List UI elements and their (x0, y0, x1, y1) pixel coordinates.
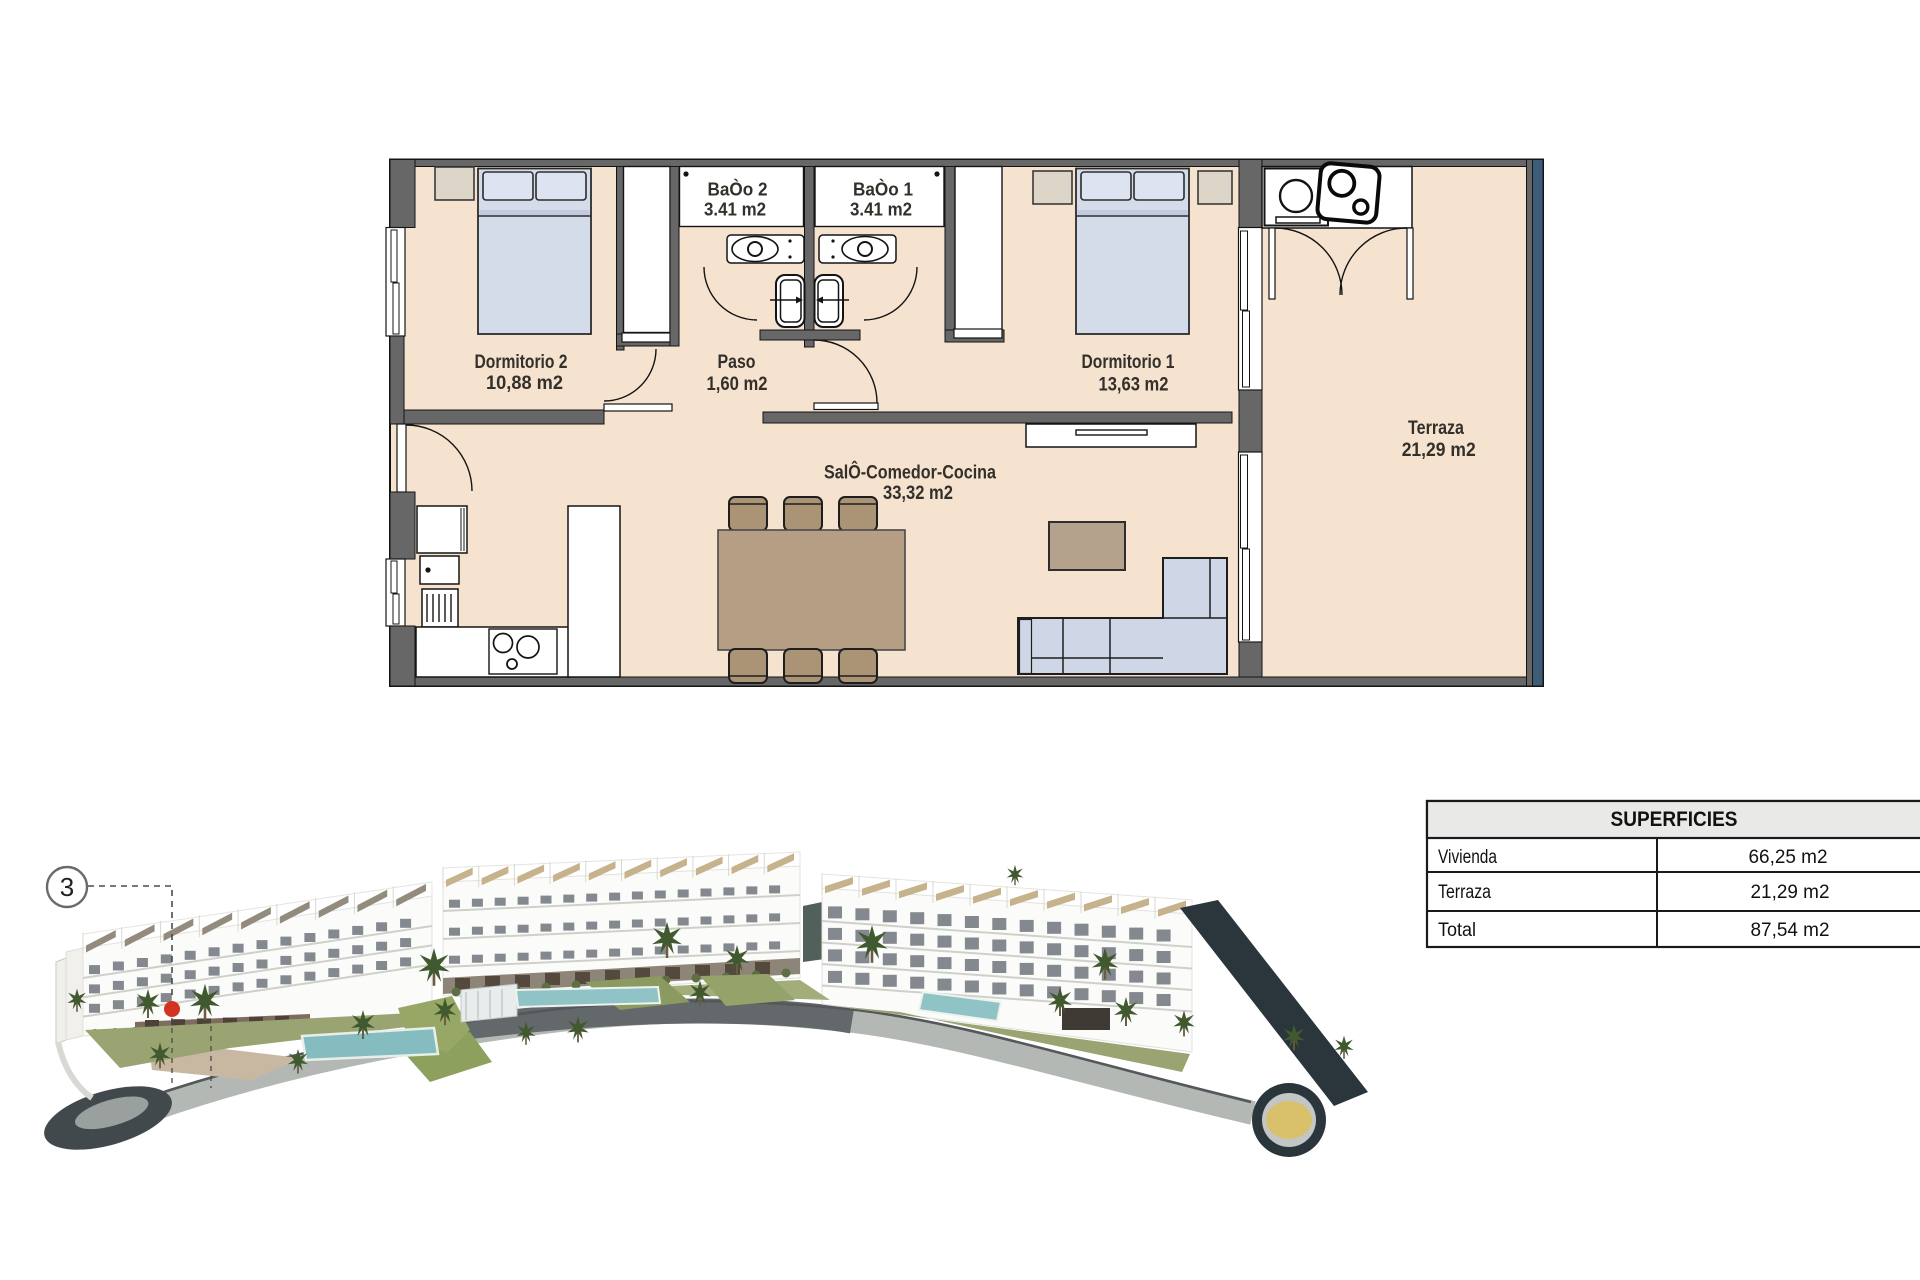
svg-text:13,63 m2: 13,63 m2 (1099, 375, 1169, 396)
svg-text:Terraza: Terraza (1408, 418, 1464, 439)
svg-text:Dormitorio 1: Dormitorio 1 (1082, 352, 1175, 373)
svg-text:66,25 m2: 66,25 m2 (1749, 847, 1828, 868)
svg-text:1,60 m2: 1,60 m2 (707, 374, 768, 395)
svg-text:Vivienda: Vivienda (1438, 847, 1497, 868)
svg-text:Dormitorio 2: Dormitorio 2 (475, 352, 568, 373)
svg-text:BaÒo 1: BaÒo 1 (853, 179, 913, 200)
svg-text:Paso: Paso (718, 352, 756, 373)
svg-text:Terraza: Terraza (1438, 882, 1491, 903)
svg-text:SUPERFICIES: SUPERFICIES (1611, 807, 1738, 831)
svg-text:33,32 m2: 33,32 m2 (883, 483, 953, 504)
svg-text:3.41 m2: 3.41 m2 (704, 200, 766, 220)
svg-text:21,29 m2: 21,29 m2 (1751, 882, 1830, 903)
svg-text:21,29 m2: 21,29 m2 (1402, 440, 1476, 461)
svg-text:SalÔ-Comedor-Cocina: SalÔ-Comedor-Cocina (824, 462, 996, 484)
svg-text:3: 3 (60, 872, 74, 902)
svg-text:10,88 m2: 10,88 m2 (486, 373, 563, 394)
svg-text:Total: Total (1438, 920, 1476, 941)
svg-text:3.41 m2: 3.41 m2 (850, 200, 912, 220)
svg-text:BaÒo 2: BaÒo 2 (708, 179, 768, 200)
svg-text:87,54 m2: 87,54 m2 (1751, 920, 1830, 941)
